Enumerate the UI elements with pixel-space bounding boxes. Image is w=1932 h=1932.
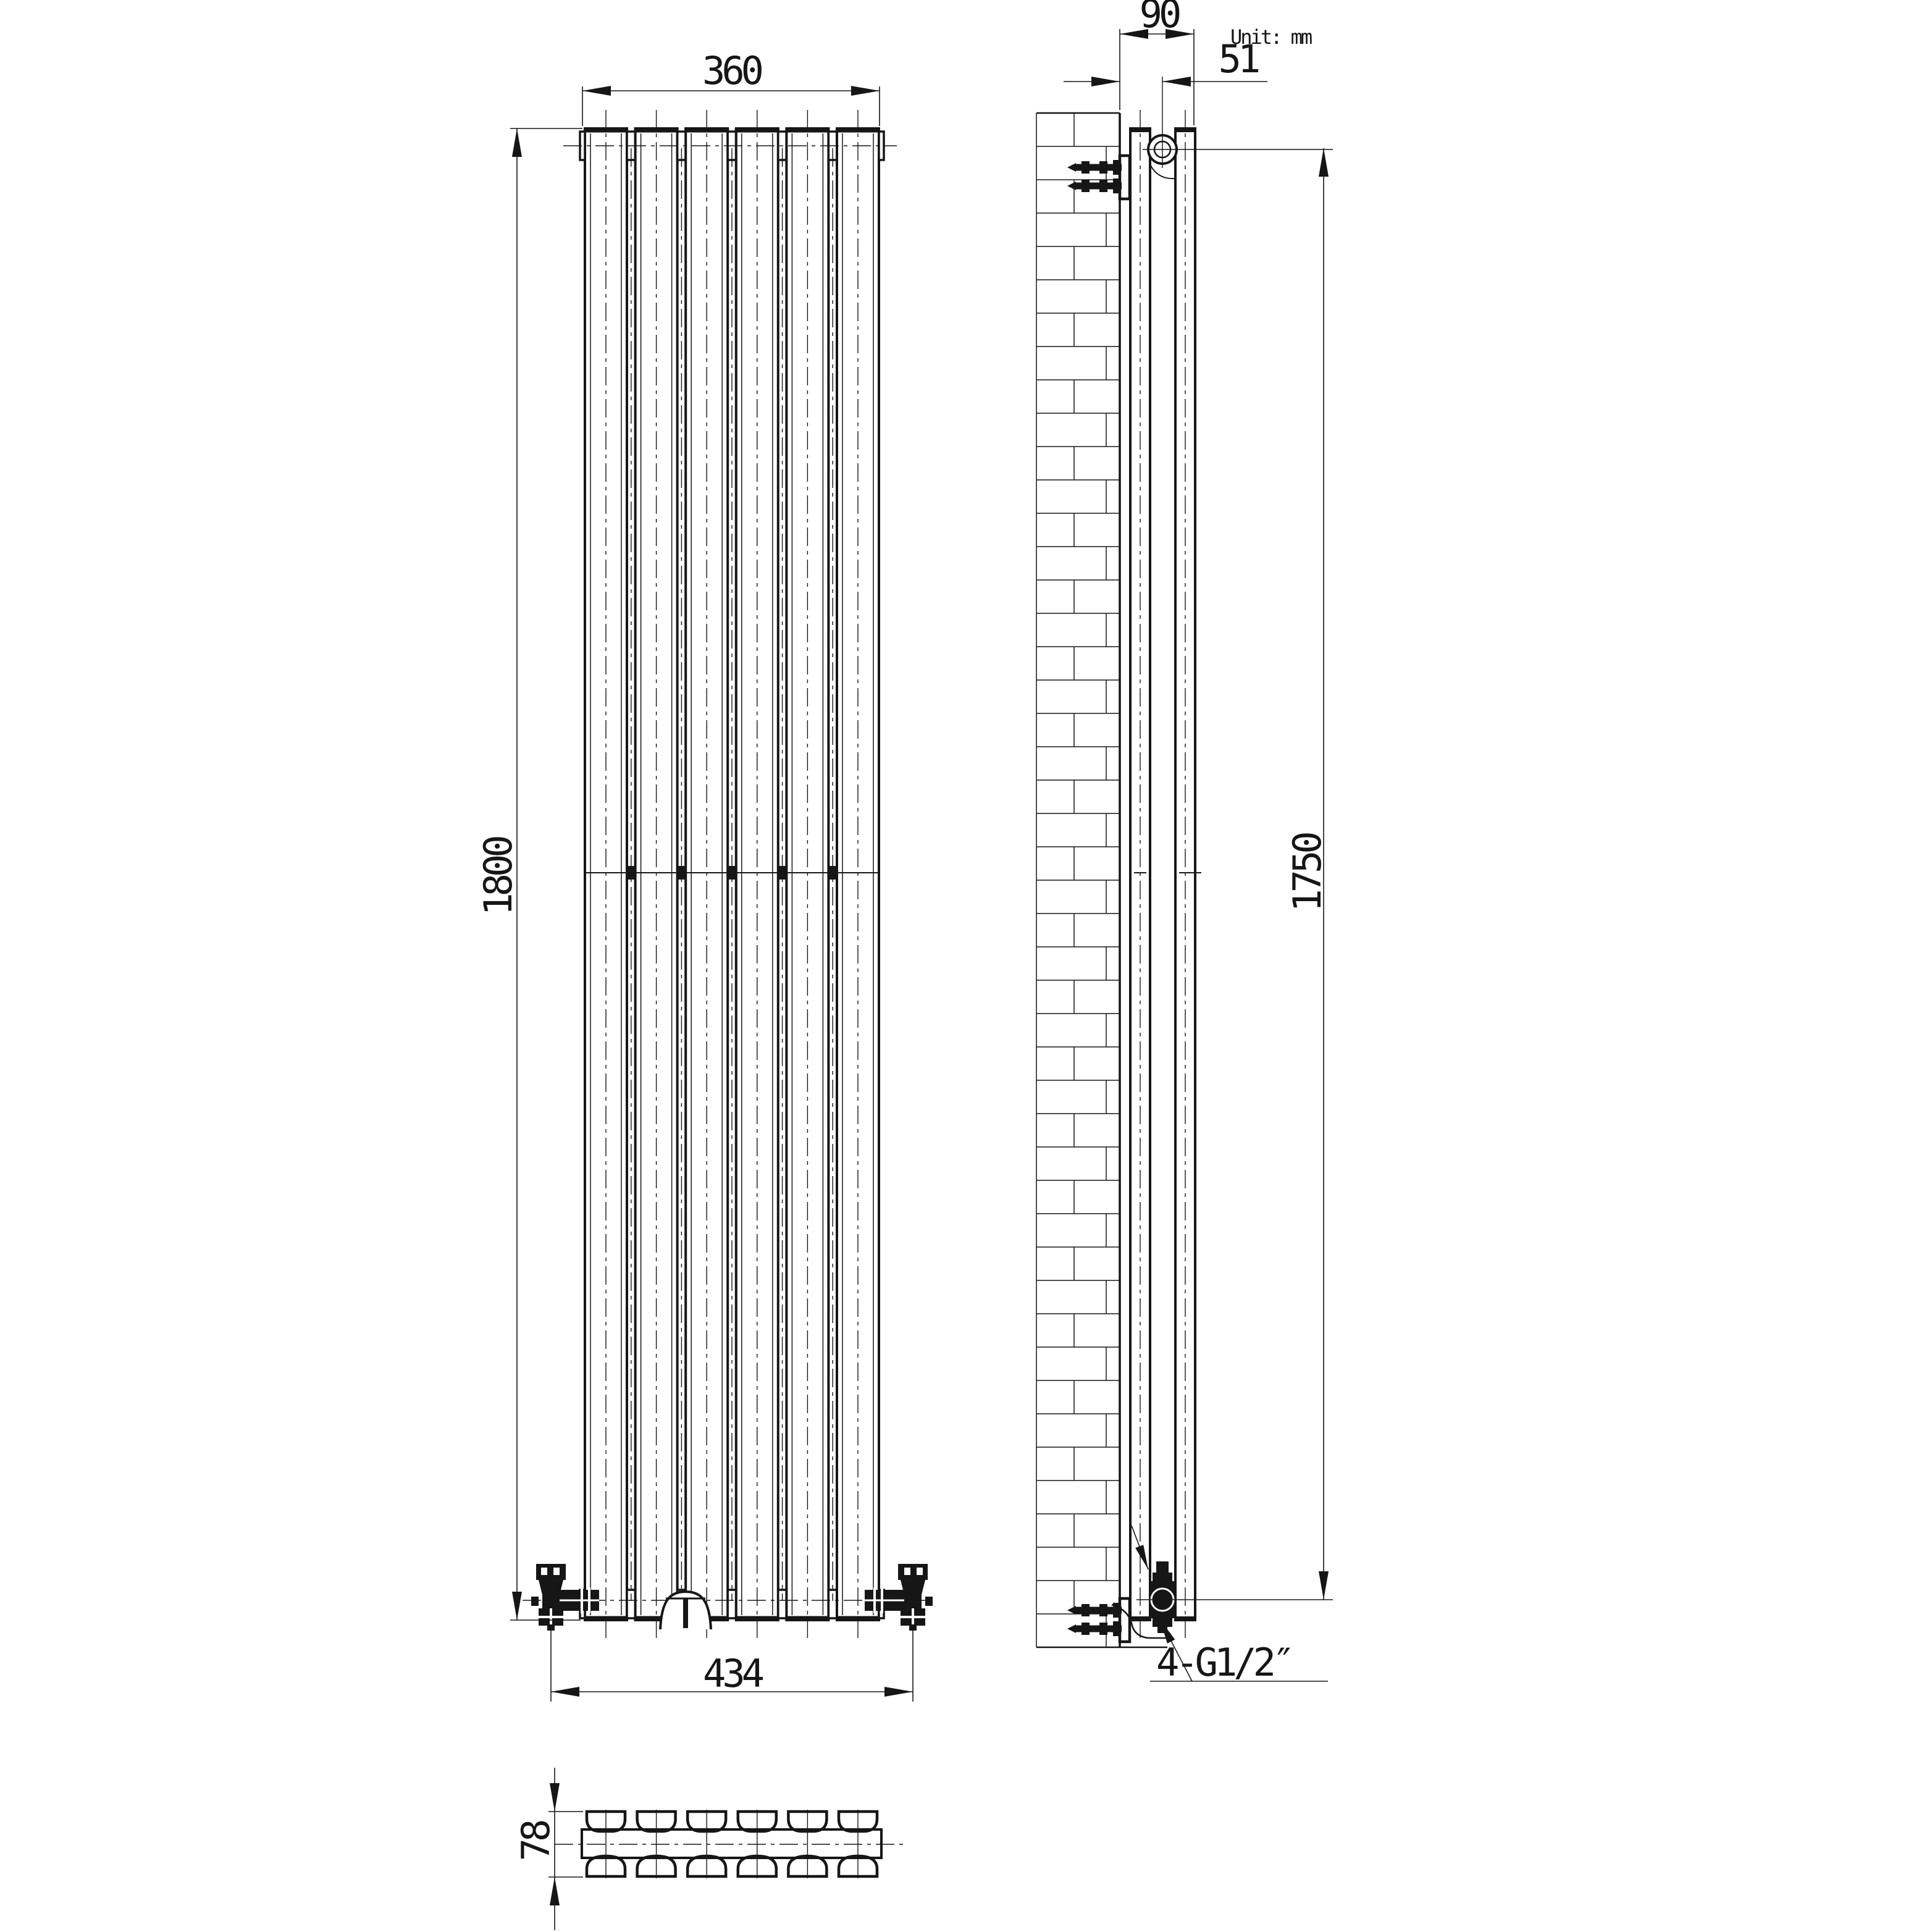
section-view	[555, 1810, 903, 1878]
unit-note: Unit: mm	[1230, 25, 1312, 49]
dim-side-depth: 90	[1140, 0, 1180, 36]
dim-front-width-bottom: 434	[703, 1651, 763, 1696]
dim-side-bracket-span: 1750	[1285, 833, 1330, 912]
side-view	[1036, 110, 1201, 1647]
dim-front-height: 1800	[476, 837, 521, 916]
dim-section-depth: 78	[513, 1821, 558, 1861]
connection-thread-label: 4-G1/2″	[1156, 1640, 1291, 1685]
dim-front-width-top: 360	[702, 48, 762, 93]
radiator-technical-drawing: 360 1800 434 90 51 1750 78 4-G1/2″ Unit:…	[0, 0, 1932, 1932]
front-view	[523, 110, 933, 1638]
